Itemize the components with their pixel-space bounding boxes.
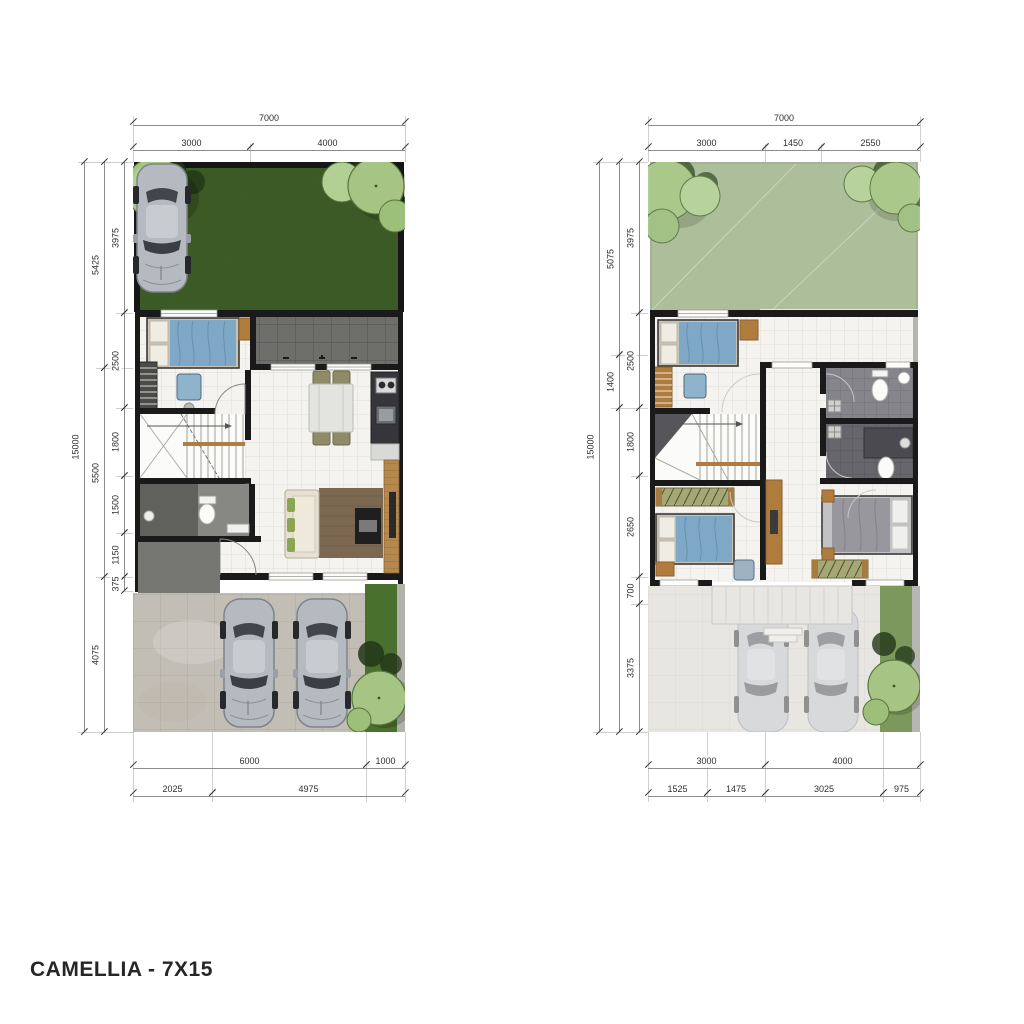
basin <box>898 372 910 384</box>
kitchen <box>371 372 399 460</box>
dim-label: 2500 <box>111 348 122 372</box>
dim-uf-left-b: 2650 <box>639 476 640 577</box>
upper-floor-plan <box>648 162 920 732</box>
dim-gf-top-seg: 4000 <box>250 150 405 151</box>
sink <box>227 524 249 533</box>
stairs <box>140 414 245 478</box>
page-title: CAMELLIA - 7X15 <box>30 958 213 982</box>
dim-gf-left-a: 5425 <box>104 162 105 368</box>
chair <box>734 560 754 580</box>
dim-uf-top-seg: 2550 <box>821 150 920 151</box>
dim-label: 5500 <box>91 460 102 484</box>
stair-rail <box>183 442 245 446</box>
dim-gf-top-seg: 3000 <box>133 150 250 151</box>
dim-label: 3000 <box>694 138 718 149</box>
tv-panel <box>389 492 396 538</box>
dim-gf-bottom: 4975 <box>212 796 405 797</box>
dim-uf-bottom: 3025 <box>765 796 883 797</box>
dim-uf-bottom: 3000 <box>648 768 765 769</box>
dim-label: 3025 <box>812 784 836 795</box>
dim-label: 1450 <box>781 138 805 149</box>
dim-uf-top-seg: 3000 <box>648 150 765 151</box>
dim-label: 3000 <box>694 756 718 767</box>
dim-label: 4000 <box>830 756 854 767</box>
dim-uf-left-b: 2500 <box>639 313 640 408</box>
extension-line <box>366 732 367 802</box>
dim-label: 6000 <box>237 756 261 767</box>
bedroom-3 <box>822 490 912 560</box>
stairs <box>655 414 760 480</box>
dim-uf-bottom: 4000 <box>765 768 920 769</box>
stair-rail <box>696 462 760 466</box>
dim-label: 3975 <box>626 225 637 249</box>
dim-label: 1500 <box>111 492 122 516</box>
dim-label: 1525 <box>665 784 689 795</box>
dim-label: 2550 <box>858 138 882 149</box>
toilet <box>878 457 894 479</box>
dim-label: 375 <box>111 574 122 593</box>
dim-label: 3375 <box>626 656 637 680</box>
nightstand <box>740 320 758 340</box>
living-room <box>285 488 383 558</box>
dim-uf-total-height: 15000 <box>599 162 600 732</box>
dim-gf-bottom: 2025 <box>133 796 212 797</box>
central-closet <box>766 480 782 564</box>
dim-uf-left-b: 1800 <box>639 408 640 476</box>
toilet <box>199 496 216 504</box>
dim-label: 3975 <box>111 225 122 249</box>
dim-label: 975 <box>892 784 911 795</box>
wood-deck <box>384 460 399 573</box>
dim-gf-bottom: 1000 <box>366 768 405 769</box>
dim-label: 1800 <box>626 430 637 454</box>
dim-uf-left-b: 3975 <box>639 162 640 313</box>
dim-uf-bottom: 1475 <box>707 796 765 797</box>
dim-label: 1150 <box>111 543 122 566</box>
dim-label: 1000 <box>373 756 397 767</box>
dim-uf-bottom: 1525 <box>648 796 707 797</box>
dim-label: 1800 <box>111 430 122 454</box>
extension-line <box>78 732 133 733</box>
dim-label: 700 <box>626 581 637 600</box>
dim-gf-left-b: 1150 <box>124 533 125 577</box>
dim-uf-left-a: 5075 <box>619 162 620 355</box>
dim-label: 15000 <box>71 432 82 461</box>
dim-gf-bottom: 6000 <box>133 768 366 769</box>
dim-label: 2025 <box>160 784 184 795</box>
dim-gf-left-b: 2500 <box>124 313 125 408</box>
dim-label: 3000 <box>179 138 203 149</box>
dim-uf-left-a-unlabeled <box>619 408 620 732</box>
ground-floor-plan <box>133 162 405 732</box>
dim-label: 7000 <box>257 113 281 124</box>
bathroom <box>140 484 249 536</box>
dim-uf-left-b: 700 <box>639 577 640 604</box>
dim-uf-total-width: 7000 <box>648 125 920 126</box>
window <box>161 310 217 317</box>
dim-label: 1475 <box>724 784 748 795</box>
dim-uf-left-b: 3375 <box>639 604 640 732</box>
dim-label: 4000 <box>315 138 339 149</box>
dim-gf-left-b: 3975 <box>124 162 125 313</box>
chair <box>177 374 201 400</box>
dim-label: 5075 <box>606 246 617 270</box>
floorplan-sheet: 7000 3000 4000 15000 5425 5500 4075 3975… <box>0 0 1024 1024</box>
dim-label: 7000 <box>772 113 796 124</box>
dim-label: 4975 <box>296 784 320 795</box>
dim-gf-left-b: 1800 <box>124 408 125 476</box>
dim-uf-left-a: 1400 <box>619 355 620 408</box>
dim-label: 2500 <box>626 348 637 372</box>
dim-label: 5425 <box>91 253 102 277</box>
dim-gf-total-height: 15000 <box>84 162 85 732</box>
dim-gf-left-a: 5500 <box>104 368 105 577</box>
dim-gf-left-b: 375 <box>124 577 125 591</box>
dim-label: 4075 <box>91 642 102 666</box>
dim-label: 1400 <box>606 369 617 393</box>
dim-gf-total-width: 7000 <box>133 125 405 126</box>
toilet <box>872 379 888 401</box>
dim-uf-bottom: 975 <box>883 796 920 797</box>
dim-gf-left-b: 1500 <box>124 476 125 533</box>
dim-label: 2650 <box>626 514 637 538</box>
dim-label: 15000 <box>586 432 597 461</box>
dim-uf-top-seg: 1450 <box>765 150 821 151</box>
car <box>133 164 191 292</box>
dim-gf-left-a: 4075 <box>104 577 105 732</box>
chair <box>684 374 706 398</box>
